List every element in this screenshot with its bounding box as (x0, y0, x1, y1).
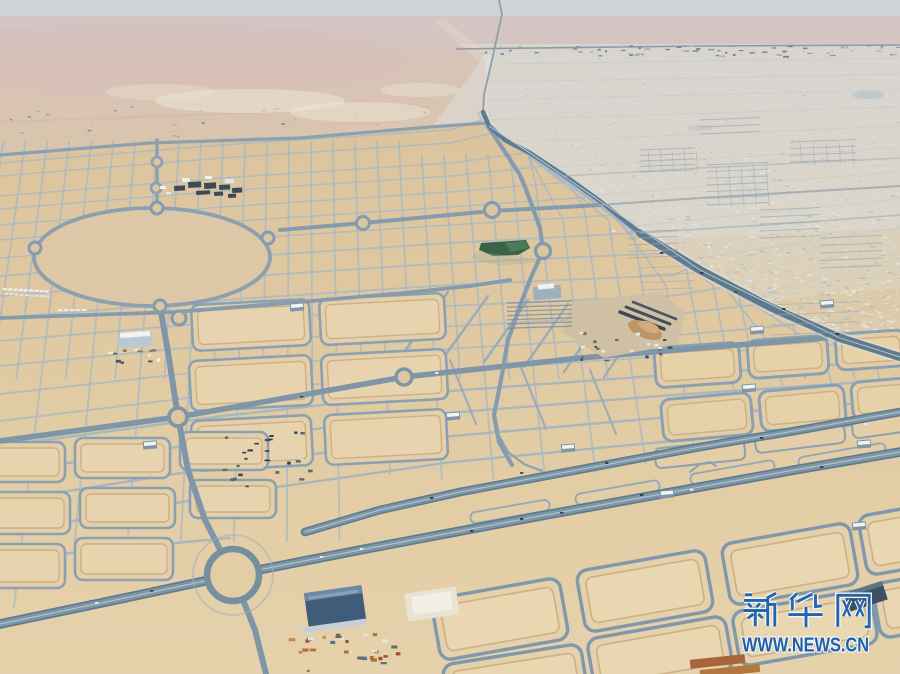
svg-text:WWW.NEWS.CN: WWW.NEWS.CN (742, 634, 869, 657)
